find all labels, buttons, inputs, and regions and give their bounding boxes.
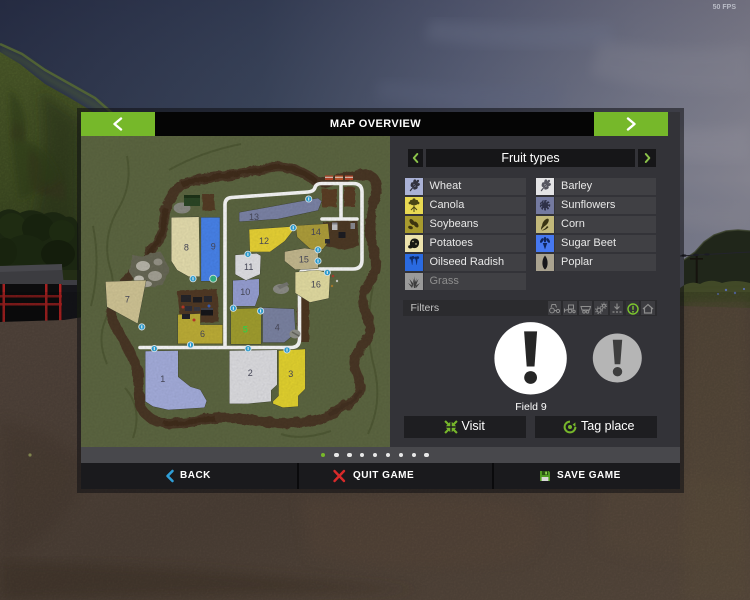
svg-text:50 FPS: 50 FPS <box>713 4 737 11</box>
